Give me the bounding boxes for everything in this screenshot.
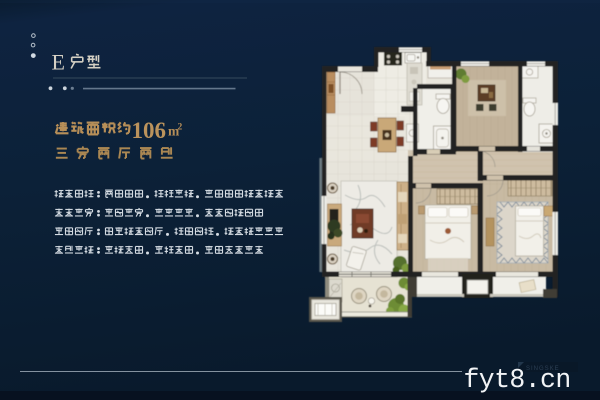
- svg-text:106: 106: [132, 118, 167, 143]
- svg-text:fyt8.cn: fyt8.cn: [464, 365, 571, 395]
- svg-text:2: 2: [178, 123, 183, 133]
- svg-text:E: E: [52, 50, 65, 75]
